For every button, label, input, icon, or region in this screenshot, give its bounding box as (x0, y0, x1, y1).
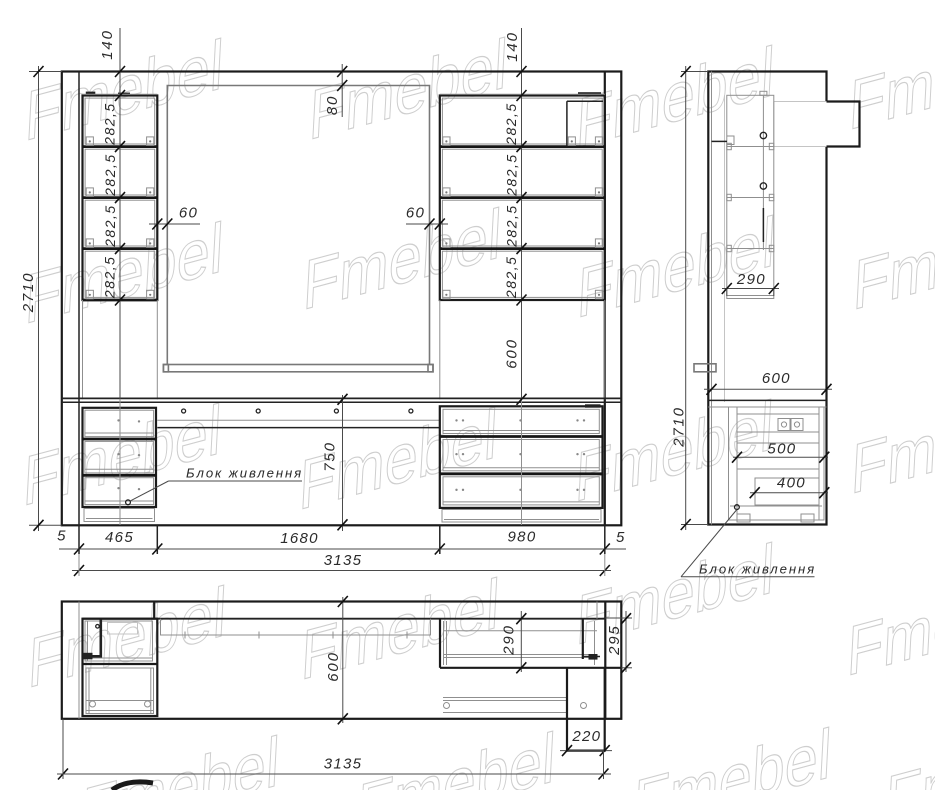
svg-text:140: 140 (99, 29, 116, 59)
svg-text:980: 980 (508, 529, 537, 546)
svg-text:750: 750 (322, 441, 339, 471)
svg-text:282,5: 282,5 (102, 153, 118, 197)
svg-text:282,5: 282,5 (503, 102, 519, 146)
svg-text:3135: 3135 (324, 552, 363, 569)
svg-text:2710: 2710 (671, 406, 688, 448)
svg-text:295: 295 (606, 624, 623, 655)
svg-text:60: 60 (179, 205, 198, 222)
svg-text:600: 600 (325, 651, 342, 681)
svg-text:400: 400 (777, 475, 806, 492)
svg-text:282,5: 282,5 (503, 153, 519, 197)
svg-text:1680: 1680 (280, 530, 319, 547)
svg-text:80: 80 (324, 95, 341, 115)
svg-text:3135: 3135 (324, 756, 363, 773)
svg-text:290: 290 (501, 624, 518, 655)
svg-text:282,5: 282,5 (102, 102, 118, 146)
svg-text:600: 600 (762, 370, 791, 387)
svg-text:282,5: 282,5 (503, 204, 519, 248)
svg-text:5: 5 (616, 529, 626, 546)
svg-text:282,5: 282,5 (503, 256, 519, 300)
svg-text:500: 500 (767, 441, 796, 458)
svg-text:220: 220 (571, 728, 601, 745)
svg-text:5: 5 (57, 528, 67, 545)
svg-text:600: 600 (504, 338, 521, 368)
svg-text:60: 60 (406, 205, 425, 222)
svg-text:2710: 2710 (20, 272, 37, 314)
svg-text:465: 465 (105, 529, 134, 546)
svg-text:Блок живлення: Блок живлення (699, 562, 816, 577)
svg-text:140: 140 (504, 31, 521, 61)
svg-text:282,5: 282,5 (102, 256, 118, 300)
svg-text:290: 290 (736, 271, 766, 288)
svg-text:282,5: 282,5 (102, 204, 118, 248)
svg-text:Блок живлення: Блок живлення (186, 466, 303, 481)
